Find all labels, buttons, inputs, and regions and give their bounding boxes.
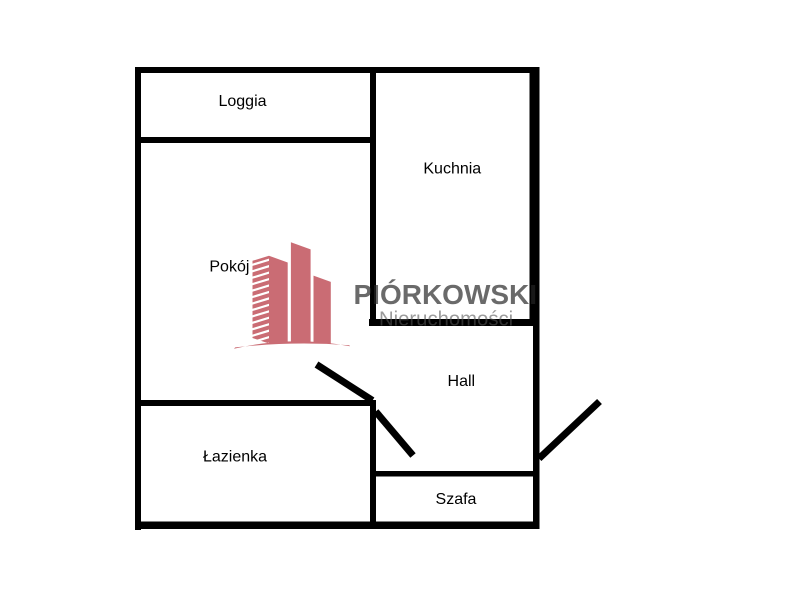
svg-text:Pokój: Pokój <box>209 259 249 276</box>
svg-text:Kuchnia: Kuchnia <box>423 161 481 178</box>
svg-text:Nieruchomości: Nieruchomości <box>379 309 513 331</box>
svg-text:Loggia: Loggia <box>218 93 266 110</box>
svg-text:PIÓRKOWSKI: PIÓRKOWSKI <box>354 279 538 310</box>
svg-text:Hall: Hall <box>448 373 476 390</box>
svg-text:Szafa: Szafa <box>436 491 477 508</box>
svg-text:Łazienka: Łazienka <box>203 448 267 465</box>
